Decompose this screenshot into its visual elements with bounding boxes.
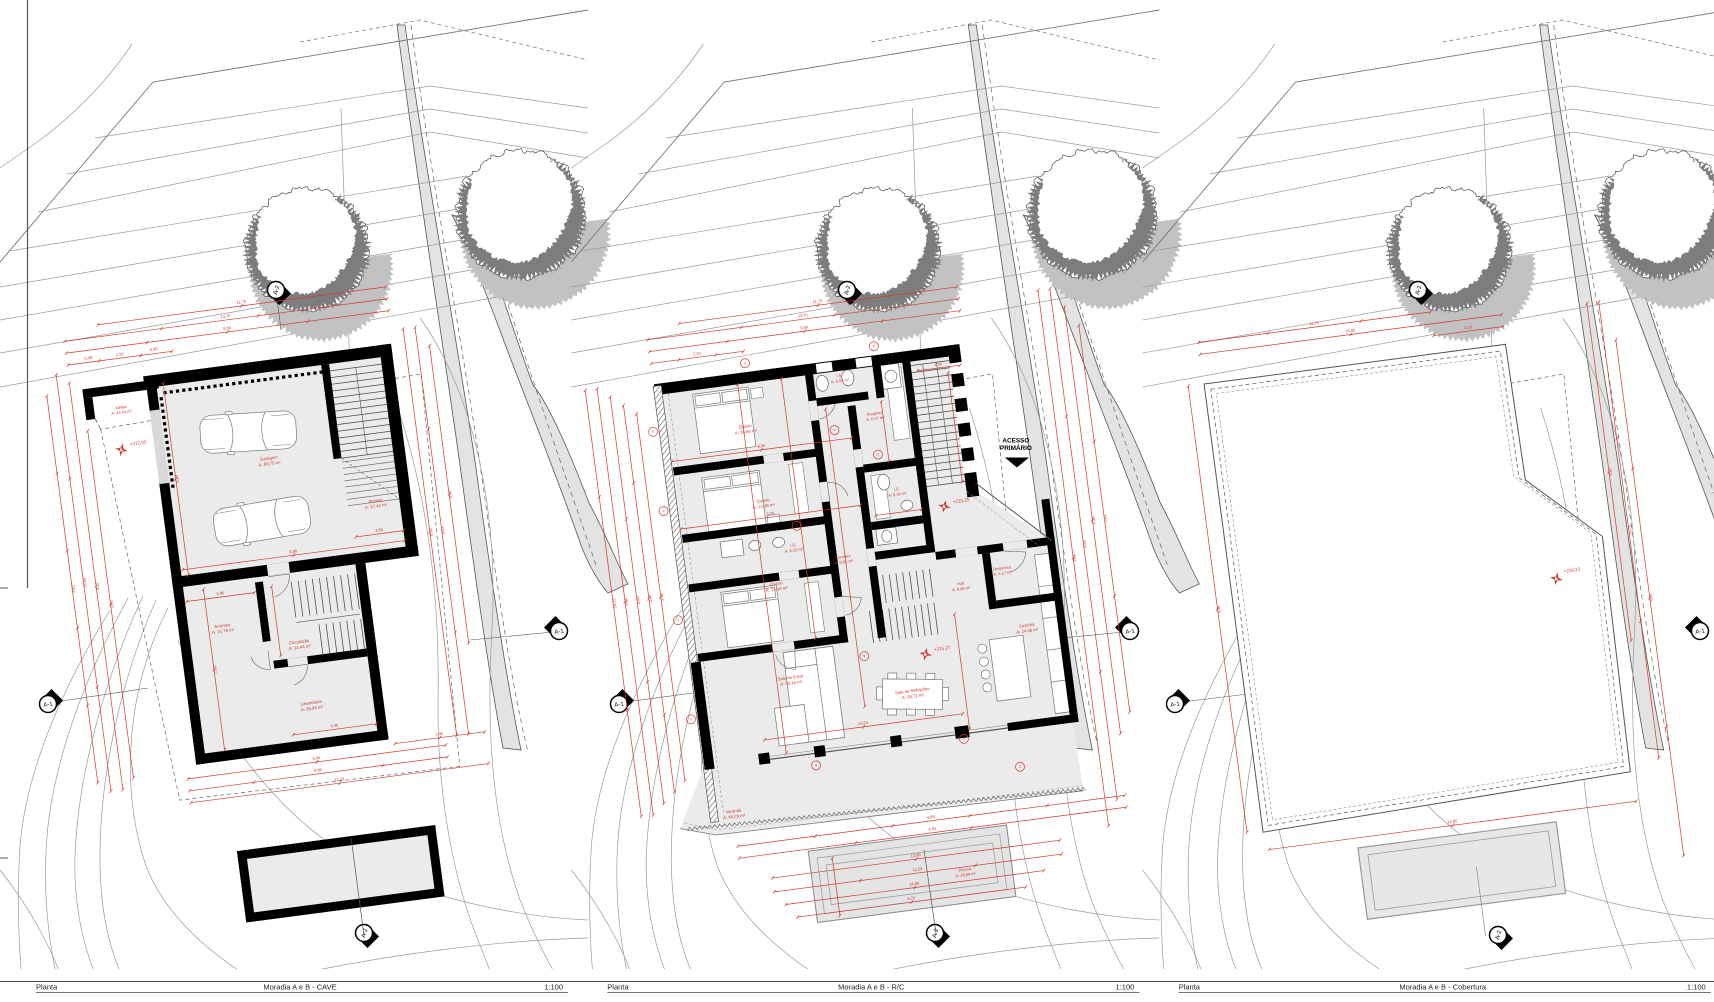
svg-text:Planta: Planta [607, 983, 629, 992]
svg-text:Moradia A e B - R/C: Moradia A e B - R/C [838, 983, 905, 992]
svg-text:1:100: 1:100 [1116, 983, 1135, 992]
svg-text:1:100: 1:100 [1687, 983, 1706, 992]
svg-text:Moradia A e B - Cobertura: Moradia A e B - Cobertura [1399, 983, 1487, 992]
svg-text:PRIMÁRIO: PRIMÁRIO [1000, 443, 1032, 452]
svg-text:ACESSO: ACESSO [1002, 438, 1029, 445]
svg-text:1:100: 1:100 [544, 983, 563, 992]
svg-text:Planta: Planta [36, 983, 58, 992]
svg-text:Moradia A e B - CAVE: Moradia A e B - CAVE [263, 983, 336, 992]
svg-text:Planta: Planta [1179, 983, 1201, 992]
